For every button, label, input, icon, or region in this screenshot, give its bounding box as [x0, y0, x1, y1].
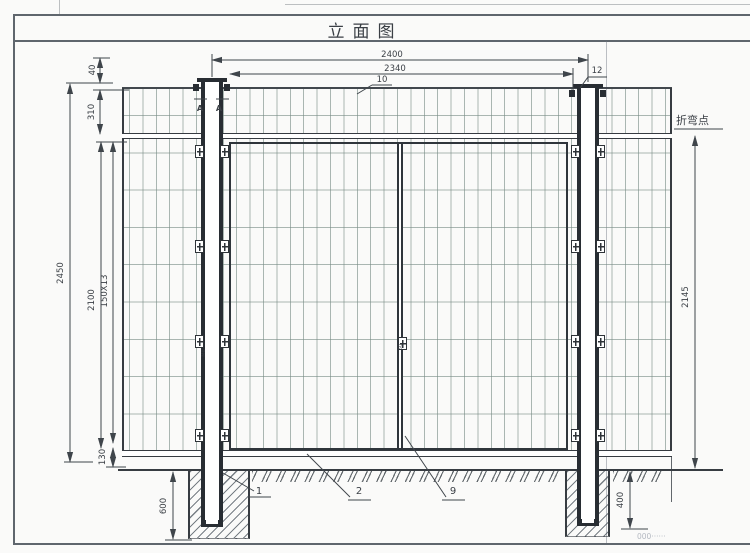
left-post-cap [197, 78, 227, 82]
mesh-left-edge [122, 88, 124, 457]
label-part-1: 1 [256, 486, 262, 497]
clamp [195, 335, 204, 348]
clamp [596, 429, 605, 442]
right-post-foot [579, 519, 597, 526]
clamp [195, 240, 204, 253]
label-bend-point: 折弯点 [676, 113, 709, 127]
left-post-lug-left [193, 84, 199, 91]
dim-panel-height: 2100 [87, 289, 97, 311]
dim-top-inner: 2340 [384, 64, 406, 74]
right-post-cap [573, 84, 603, 88]
right-post-lug-left [569, 90, 575, 97]
sheet-left-border [13, 14, 15, 544]
mesh-right-edge [670, 88, 672, 457]
clamp [220, 240, 229, 253]
sheet-top-edge-line [285, 4, 750, 5]
panel-center-divider [397, 144, 403, 448]
label-part-2: 2 [356, 486, 362, 497]
sheet-bottom-border [13, 543, 750, 545]
mesh-right-edge-extension [671, 457, 672, 502]
corner-note: 000······ [637, 532, 666, 541]
drawing-title: 立面图 [275, 17, 455, 42]
dim-bend-to-ground: 2145 [681, 286, 691, 308]
clamp [571, 240, 580, 253]
dim-post-edge: 12 [592, 66, 603, 76]
dim-overall-height: 2450 [56, 262, 66, 284]
divider-clamp [398, 337, 407, 350]
clamp [596, 335, 605, 348]
ground-hatch-left [252, 471, 560, 482]
clamp [220, 429, 229, 442]
dim-bottom-gap: 130 [98, 449, 108, 465]
dim-left-footing-depth: 600 [159, 498, 169, 514]
clamp [195, 429, 204, 442]
clamp [220, 335, 229, 348]
left-post-lug-right [224, 84, 230, 91]
ground-hatch-right [613, 471, 665, 482]
dim-top-cap-gap: 40 [88, 65, 98, 76]
clamp [571, 335, 580, 348]
clamp [571, 429, 580, 442]
dim-right-footing-depth: 400 [616, 492, 626, 508]
dim-bend-offset: 310 [87, 104, 97, 120]
clamp [596, 240, 605, 253]
right-post-lug-right [600, 90, 606, 97]
label-part-9: 9 [450, 486, 456, 497]
sheet-left-stub-line [59, 0, 60, 14]
title-band-top-line [13, 14, 750, 16]
dim-mesh-opening: 150X13 [100, 275, 110, 308]
clamp [195, 145, 204, 158]
left-post-foot [203, 520, 221, 527]
clamp [571, 145, 580, 158]
clamp [220, 145, 229, 158]
dim-mesh-wire: 10 [377, 75, 388, 85]
dim-top-overall: 2400 [381, 50, 403, 60]
clamp [596, 145, 605, 158]
